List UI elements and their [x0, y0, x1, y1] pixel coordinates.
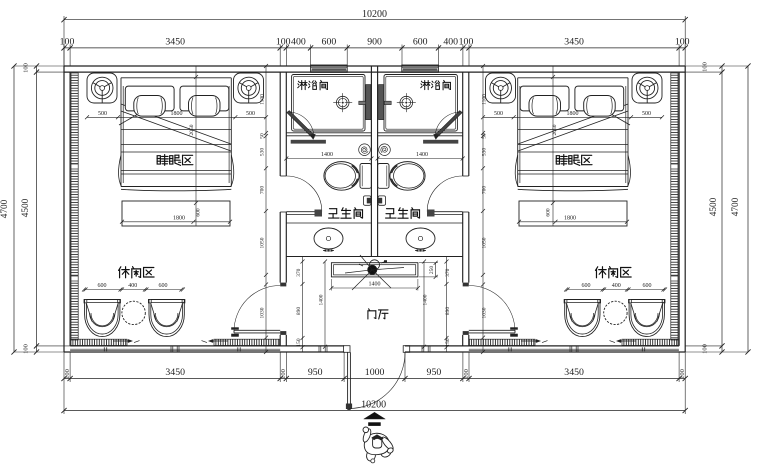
svg-text:600: 600 [196, 208, 202, 217]
svg-text:400: 400 [291, 37, 306, 48]
svg-text:250: 250 [429, 266, 435, 275]
svg-text:500: 500 [642, 111, 651, 117]
svg-text:500: 500 [494, 111, 503, 117]
svg-text:600: 600 [159, 283, 168, 289]
svg-text:1800: 1800 [564, 216, 576, 222]
svg-text:950: 950 [308, 367, 323, 378]
svg-text:1000: 1000 [365, 367, 385, 378]
svg-text:1100: 1100 [482, 94, 488, 105]
svg-text:2050: 2050 [189, 124, 195, 135]
svg-text:100: 100 [459, 37, 474, 48]
svg-text:150: 150 [296, 338, 302, 347]
svg-text:3450: 3450 [165, 37, 185, 48]
svg-text:700: 700 [260, 186, 266, 195]
svg-text:600: 600 [546, 208, 552, 217]
svg-text:50: 50 [482, 133, 488, 139]
svg-text:1400: 1400 [369, 282, 381, 288]
svg-text:1100: 1100 [260, 94, 266, 105]
svg-text:100: 100 [64, 369, 71, 379]
svg-text:4700: 4700 [0, 199, 10, 218]
svg-text:1400: 1400 [321, 152, 333, 158]
svg-text:500: 500 [246, 111, 255, 117]
svg-text:100: 100 [463, 369, 470, 379]
svg-text:890: 890 [445, 307, 451, 316]
svg-text:100: 100 [23, 344, 30, 354]
svg-text:900: 900 [367, 37, 382, 48]
svg-text:100: 100 [679, 369, 686, 379]
svg-text:4500: 4500 [21, 198, 31, 217]
svg-text:950: 950 [427, 367, 442, 378]
svg-text:600: 600 [582, 283, 591, 289]
svg-text:1400: 1400 [319, 294, 325, 305]
svg-text:150: 150 [445, 338, 451, 347]
svg-text:100: 100 [702, 62, 709, 72]
svg-text:1050: 1050 [260, 237, 266, 248]
svg-text:600: 600 [413, 37, 428, 48]
svg-text:10200: 10200 [362, 9, 387, 20]
svg-text:1800: 1800 [567, 111, 579, 117]
svg-text:500: 500 [98, 111, 107, 117]
svg-text:530: 530 [482, 148, 488, 157]
svg-text:700: 700 [482, 186, 488, 195]
svg-text:1400: 1400 [416, 152, 428, 158]
svg-text:3450: 3450 [564, 367, 584, 378]
svg-text:50: 50 [260, 133, 266, 139]
svg-text:370: 370 [445, 268, 451, 277]
svg-text:1400: 1400 [423, 294, 429, 305]
svg-text:100: 100 [280, 369, 287, 379]
svg-text:1800: 1800 [173, 216, 185, 222]
svg-text:3450: 3450 [564, 37, 584, 48]
svg-text:600: 600 [643, 283, 652, 289]
svg-text:4700: 4700 [731, 197, 741, 216]
svg-text:100: 100 [702, 344, 709, 354]
svg-text:3450: 3450 [165, 367, 185, 378]
svg-text:400: 400 [128, 283, 137, 289]
svg-text:100: 100 [60, 37, 75, 48]
svg-text:1030: 1030 [482, 307, 488, 318]
svg-text:600: 600 [98, 283, 107, 289]
svg-text:1030: 1030 [260, 307, 266, 318]
svg-text:600: 600 [322, 37, 337, 48]
svg-text:400: 400 [612, 283, 621, 289]
svg-text:10200: 10200 [361, 400, 386, 411]
svg-text:890: 890 [296, 307, 302, 316]
svg-text:1050: 1050 [482, 237, 488, 248]
svg-text:100: 100 [276, 37, 291, 48]
svg-text:2050: 2050 [552, 124, 558, 135]
svg-text:1800: 1800 [171, 111, 183, 117]
svg-text:530: 530 [260, 148, 266, 157]
svg-text:100: 100 [675, 37, 690, 48]
svg-text:400: 400 [443, 37, 458, 48]
svg-text:370: 370 [296, 268, 302, 277]
svg-text:4500: 4500 [709, 197, 719, 216]
svg-text:100: 100 [23, 63, 30, 73]
